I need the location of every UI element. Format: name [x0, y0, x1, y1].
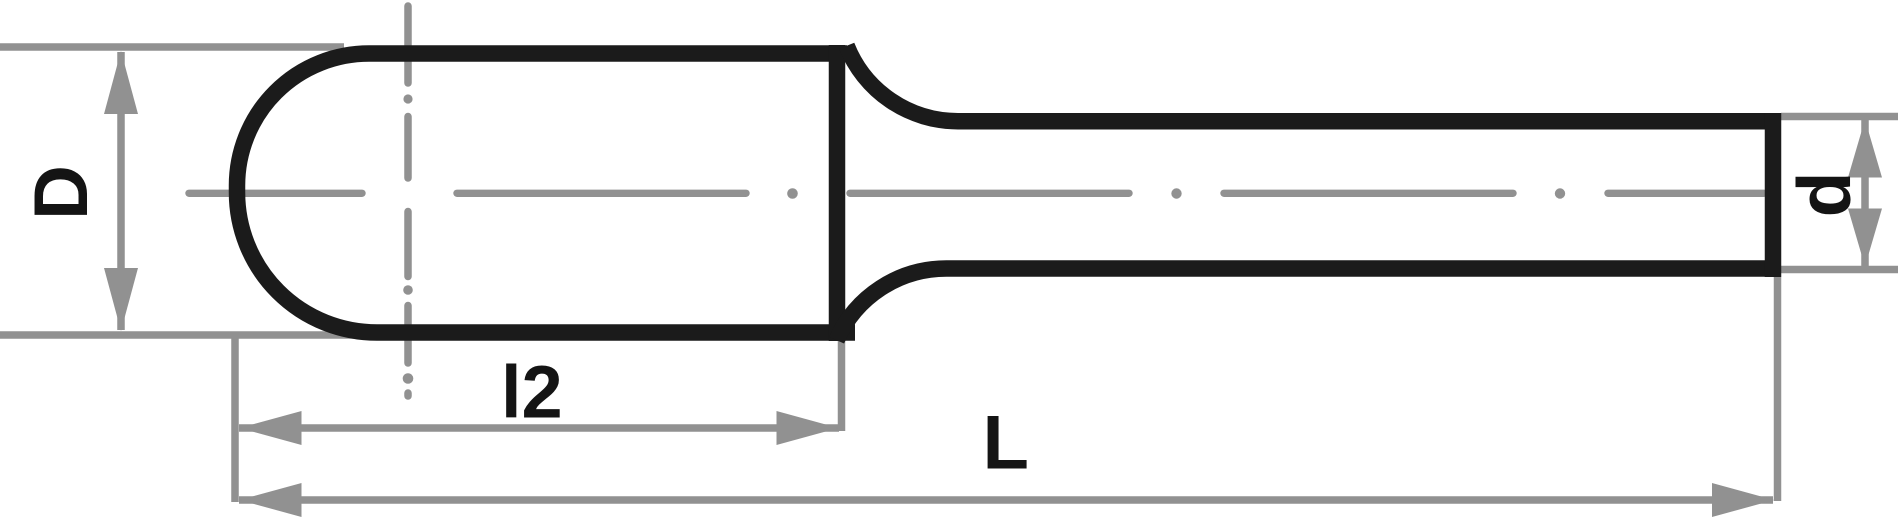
svg-text:L: L: [983, 401, 1029, 486]
svg-text:d: d: [1782, 172, 1866, 218]
svg-text:l2: l2: [501, 351, 563, 434]
svg-text:D: D: [19, 165, 104, 220]
